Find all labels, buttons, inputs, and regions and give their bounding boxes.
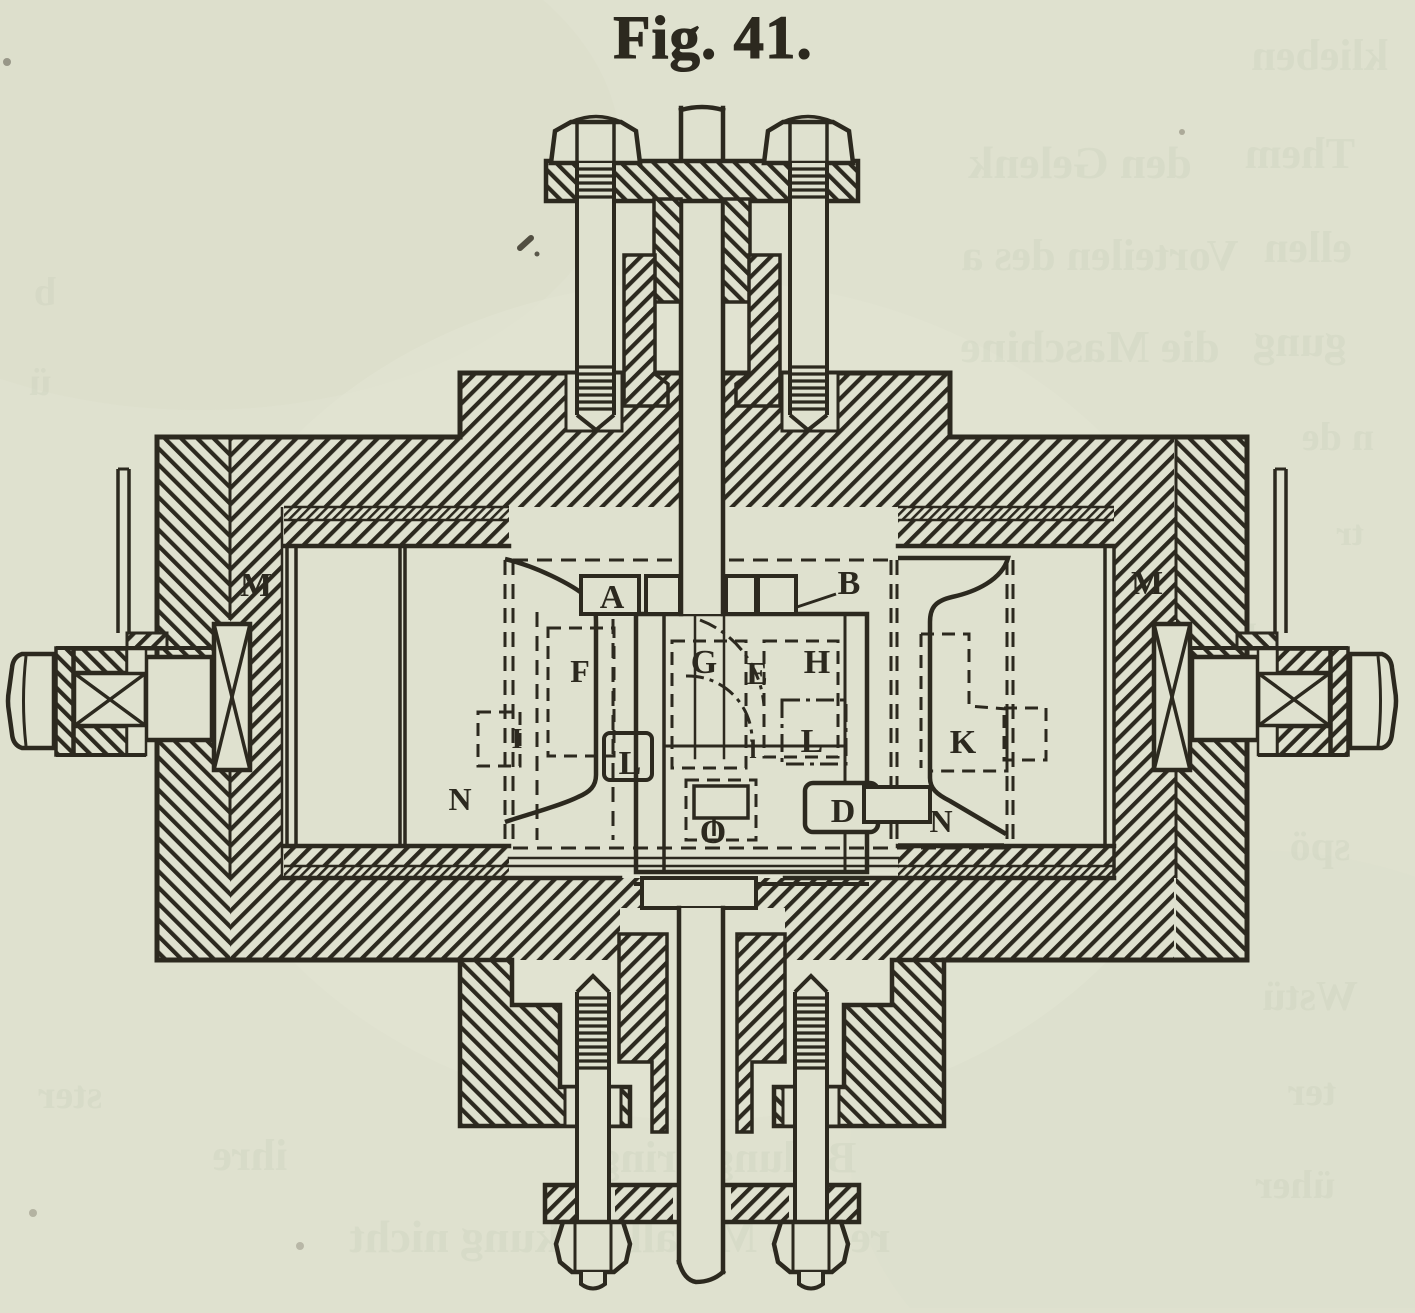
svg-text:ü: ü: [29, 359, 51, 404]
svg-text:B: B: [838, 565, 861, 602]
svg-text:N: N: [929, 803, 952, 839]
svg-text:O: O: [700, 814, 726, 851]
svg-text:üher: üher: [1255, 1162, 1335, 1207]
svg-text:b: b: [34, 269, 56, 314]
svg-text:L: L: [619, 745, 642, 782]
svg-text:spö: spö: [1290, 824, 1351, 870]
svg-text:Fig. 41.: Fig. 41.: [613, 5, 812, 72]
svg-text:klieben: klieben: [1252, 31, 1389, 80]
svg-text:M: M: [1131, 565, 1163, 602]
svg-text:tr: tr: [1336, 513, 1364, 553]
svg-text:ter: ter: [1288, 1069, 1337, 1114]
svg-text:M: M: [240, 567, 272, 604]
svg-text:H: H: [804, 644, 830, 681]
svg-text:K: K: [950, 724, 977, 761]
svg-text:N: N: [448, 781, 471, 817]
svg-text:Vorteilen des a: Vorteilen des a: [961, 231, 1238, 280]
svg-text:F: F: [570, 653, 590, 689]
svg-text:D: D: [831, 793, 856, 830]
svg-text:die Maschine: die Maschine: [960, 321, 1219, 372]
svg-text:L: L: [801, 723, 824, 760]
svg-text:Wstü: Wstü: [1262, 974, 1358, 1020]
svg-text:ellen: ellen: [1264, 223, 1352, 272]
svg-text:G: G: [691, 644, 717, 681]
svg-text:n de: n de: [1302, 414, 1374, 459]
svg-text:gung: gung: [1254, 317, 1347, 366]
svg-text:ihre: ihre: [213, 1131, 288, 1180]
svg-text:I: I: [512, 724, 523, 755]
svg-text:den Gelenk: den Gelenk: [968, 137, 1192, 188]
svg-text:Them: Them: [1245, 129, 1355, 178]
svg-text:l: l: [749, 735, 756, 764]
svg-text:E: E: [746, 655, 767, 691]
svg-text:A: A: [600, 579, 625, 616]
svg-text:ster: ster: [38, 1072, 102, 1117]
